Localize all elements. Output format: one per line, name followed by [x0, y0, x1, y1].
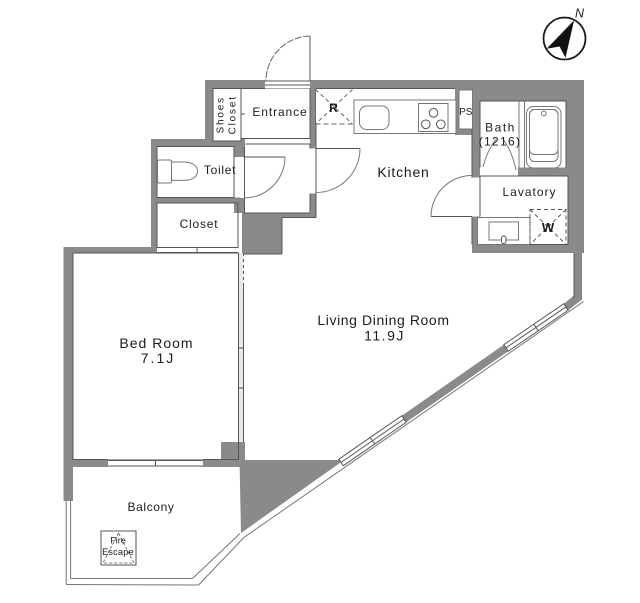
svg-text:PS: PS [459, 107, 473, 118]
svg-text:Fire: Fire [110, 536, 126, 546]
svg-text:Closet: Closet [180, 217, 219, 231]
svg-text:Kitchen: Kitchen [377, 164, 429, 180]
svg-text:Bed Room: Bed Room [119, 335, 193, 351]
svg-text:Lavatory: Lavatory [502, 185, 556, 199]
svg-text:7.1J: 7.1J [141, 350, 175, 366]
svg-text:Bath: Bath [485, 121, 516, 135]
svg-text:Balcony: Balcony [128, 500, 175, 514]
svg-text:Toilet: Toilet [204, 163, 236, 177]
svg-text:Escape: Escape [102, 547, 134, 557]
svg-text:Living Dining Room: Living Dining Room [317, 312, 449, 328]
svg-text:W: W [542, 220, 555, 235]
svg-text:(1216): (1216) [479, 135, 522, 149]
svg-text:Entrance: Entrance [252, 105, 307, 119]
svg-text:11.9J: 11.9J [364, 328, 405, 344]
svg-text:Closet: Closet [228, 95, 239, 134]
svg-text:R: R [329, 101, 338, 115]
svg-text:Shoes: Shoes [216, 96, 227, 133]
svg-text:N: N [575, 7, 585, 21]
